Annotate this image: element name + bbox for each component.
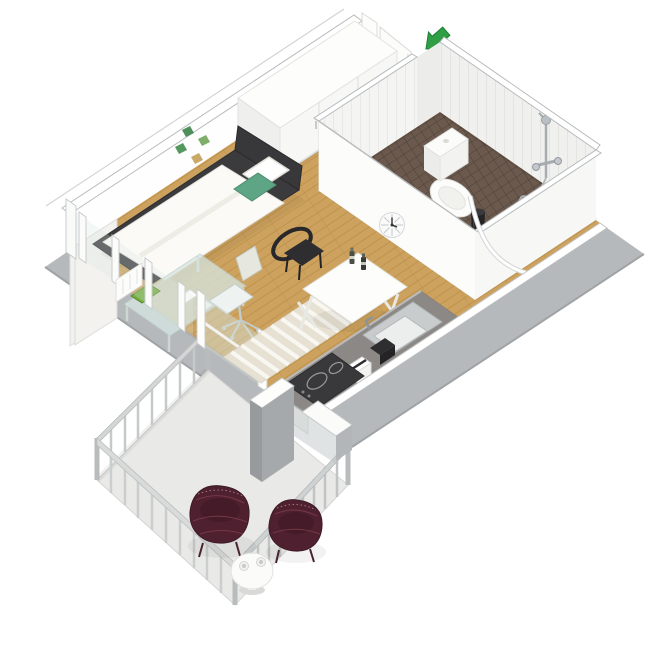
mixer-knob	[533, 164, 540, 171]
pillar-side	[250, 400, 262, 482]
bathroom-doorway	[417, 42, 440, 127]
floorplan-render	[0, 0, 652, 652]
wall-clock-icon	[380, 213, 405, 238]
window-mullion	[178, 281, 185, 332]
window-corner-post	[66, 199, 76, 259]
window-mullion	[79, 212, 86, 263]
mixer-knob	[555, 158, 562, 165]
door-post	[197, 289, 205, 349]
window-mullion	[145, 258, 152, 309]
flush-button	[443, 139, 449, 143]
